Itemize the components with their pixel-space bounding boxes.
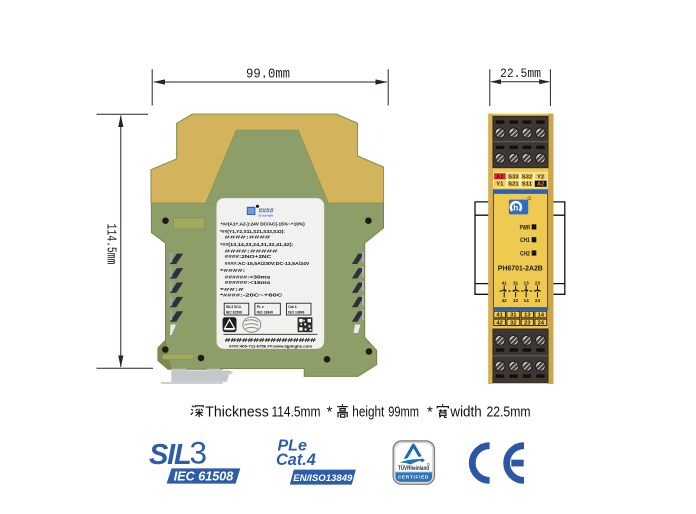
svg-text:41: 41 xyxy=(502,280,508,285)
svg-text:*: * xyxy=(427,404,433,421)
svg-text:A1: A1 xyxy=(496,174,504,180)
svg-text:*##:#: *##:# xyxy=(220,287,245,292)
svg-text:42: 42 xyxy=(502,298,508,303)
svg-text:99mm: 99mm xyxy=(388,404,419,421)
svg-text:*##(A1+,A2-):24V DC/AC(-15%~+1: *##(A1+,A2-):24V DC/AC(-15%~+10%) xyxy=(221,222,305,227)
svg-text:h: h xyxy=(513,204,518,213)
svg-text:ISO 13849: ISO 13849 xyxy=(288,310,304,314)
svg-text:32: 32 xyxy=(510,321,517,327)
svg-text:31: 31 xyxy=(513,280,519,285)
svg-text:Thickness: Thickness xyxy=(205,404,268,421)
svg-text:Cat 4: Cat 4 xyxy=(288,305,296,309)
svg-text:width: width xyxy=(450,404,482,421)
svg-text:####:400-711-6756 ##:www.bjpi: ####:400-711-6756 ##:www.bjpinghe.com xyxy=(229,344,313,348)
svg-text:24: 24 xyxy=(535,298,541,303)
svg-text:CERTIFIED: CERTIFIED xyxy=(398,475,429,480)
svg-text:CH2: CH2 xyxy=(520,250,530,257)
svg-text:####:AC-15,5A/230V;DC-13,5A/24: ####:AC-15,5A/230V;DC-13,5A/24V xyxy=(225,261,311,266)
svg-text:22.5mm: 22.5mm xyxy=(487,404,531,421)
svg-text:S33: S33 xyxy=(508,174,519,180)
svg-text:IEC 61508: IEC 61508 xyxy=(226,310,242,314)
svg-text:24: 24 xyxy=(538,321,545,327)
svg-text:S32: S32 xyxy=(522,174,533,180)
svg-text:Bei Jing PingHe: Bei Jing PingHe xyxy=(259,214,274,218)
svg-text:32: 32 xyxy=(513,298,519,303)
svg-text:PL e: PL e xyxy=(257,305,264,309)
svg-text:height: height xyxy=(352,404,385,421)
svg-text:14: 14 xyxy=(523,298,529,303)
svg-text:PWR: PWR xyxy=(520,224,531,231)
svg-text:S21: S21 xyxy=(508,182,519,188)
svg-text:*: * xyxy=(327,404,333,421)
svg-text:####:2NO+2NC: ####:2NO+2NC xyxy=(225,254,273,259)
svg-text:Y1: Y1 xyxy=(496,182,504,188)
svg-text:99.0mm: 99.0mm xyxy=(246,68,290,83)
svg-text:Y2: Y2 xyxy=(537,174,545,180)
svg-text:114.5mm: 114.5mm xyxy=(103,224,118,265)
svg-text:*##(Y1,Y2,S11,S21,S33,S32):: *##(Y1,Y2,S11,S21,S33,S32): xyxy=(220,229,285,234)
svg-text:PH6701-2A2B: PH6701-2A2B xyxy=(498,264,543,273)
svg-text:*####:-20C~+60C: *####:-20C~+60C xyxy=(220,293,284,298)
svg-text:*####:: *####: xyxy=(220,268,246,273)
svg-text:23: 23 xyxy=(524,321,531,327)
svg-text:13: 13 xyxy=(524,313,531,319)
svg-text:####:#####: ####:##### xyxy=(225,249,279,254)
svg-text:A2: A2 xyxy=(537,182,545,188)
svg-text:*##(13,14,23,24,31,32,41,42):: *##(13,14,23,24,31,32,41,42): xyxy=(220,242,294,247)
svg-text:ISO 13849: ISO 13849 xyxy=(257,310,273,314)
svg-text:######:<30ms: ######:<30ms xyxy=(225,275,271,280)
svg-text:SIL: SIL xyxy=(149,439,191,471)
svg-text:13: 13 xyxy=(523,280,529,285)
svg-text:Cat.4: Cat.4 xyxy=(276,451,316,469)
svg-text:S11: S11 xyxy=(522,182,533,188)
svg-text:SIL3 SC3: SIL3 SC3 xyxy=(226,305,241,309)
svg-text:EN/ISO13849: EN/ISO13849 xyxy=(293,473,353,484)
svg-text:TÜVRheinland: TÜVRheinland xyxy=(398,465,429,472)
svg-text:######:<15ms: ######:<15ms xyxy=(225,280,271,285)
svg-text:41: 41 xyxy=(496,313,503,319)
svg-text:################: ################ xyxy=(225,338,316,344)
svg-text:IEC 61508: IEC 61508 xyxy=(174,469,234,483)
svg-text:14: 14 xyxy=(538,313,545,319)
svg-text:22.5mm: 22.5mm xyxy=(500,66,541,81)
svg-text:42: 42 xyxy=(496,321,503,327)
svg-text:114.5mm: 114.5mm xyxy=(272,404,321,421)
svg-text:CH1: CH1 xyxy=(520,237,530,244)
svg-text:23: 23 xyxy=(535,280,541,285)
svg-text:31: 31 xyxy=(510,313,517,319)
svg-text:3: 3 xyxy=(190,434,208,470)
svg-text:####:####: ####:#### xyxy=(225,235,271,240)
